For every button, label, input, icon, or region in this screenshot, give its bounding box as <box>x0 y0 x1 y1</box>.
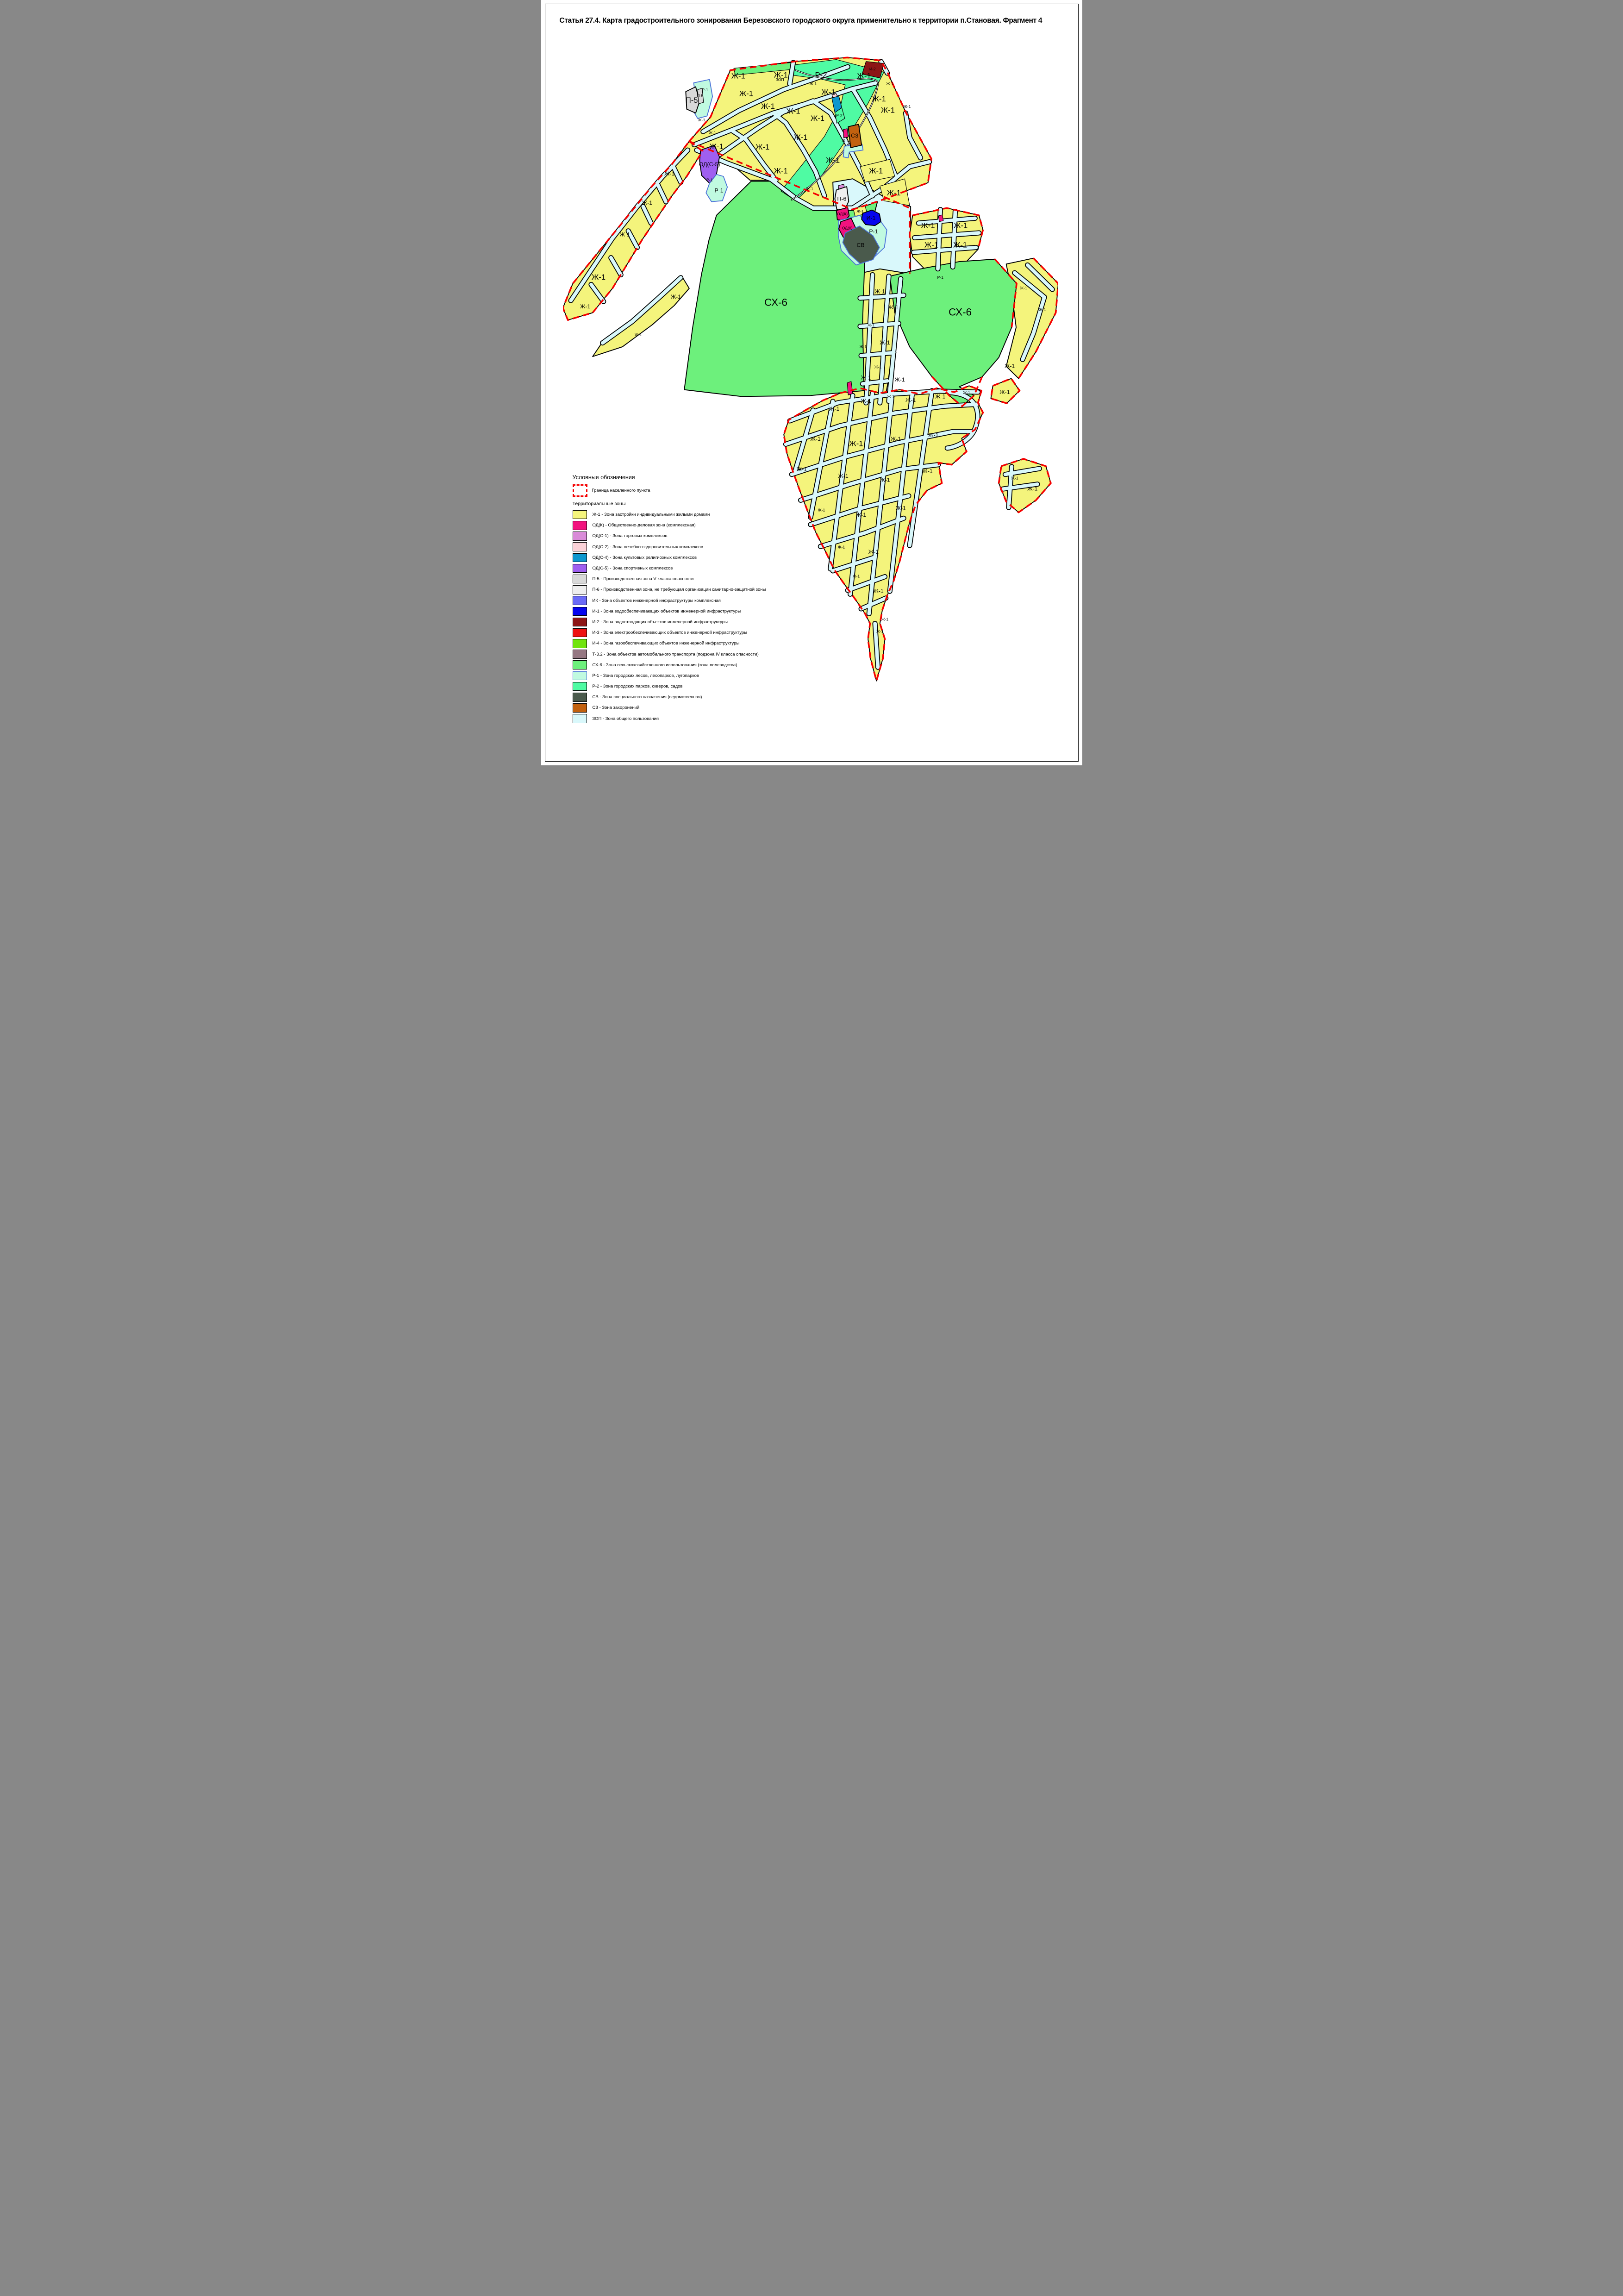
legend-item-ods1: ОД(С-1) - Зона торговых комплексов <box>573 531 813 541</box>
map-zone-label: Ж-1 <box>886 81 893 86</box>
map-zone-label: Ж-1 <box>867 323 874 327</box>
legend-swatch-zh1 <box>573 510 587 519</box>
legend-label: СЗ - Зона захоронений <box>593 705 640 710</box>
legend-swatch-ods2 <box>573 542 587 551</box>
legend-label: И-2 - Зона водоотводящих объектов инжене… <box>593 619 728 625</box>
map-zone-label: Ж-1 <box>861 398 871 404</box>
map-zone-label: Ж-1 <box>874 365 881 369</box>
map-zone-label: Ж-1 <box>664 170 674 177</box>
map-zone-label: Ж-1 <box>810 114 824 123</box>
map-zone-label: Ж-1 <box>861 375 871 381</box>
legend-items: Ж-1 - Зона застройки индивидуальными жил… <box>573 509 813 724</box>
map-zone-label: Ж-1 <box>1020 286 1027 290</box>
legend-item-zop: ЗОП - Зона общего пользования <box>573 713 813 724</box>
legend-label: П-6 - Производственная зона, не требующа… <box>593 587 766 592</box>
map-zone-label: Ж-1 <box>1011 475 1018 480</box>
map-zone-label: Ж-1 <box>953 241 967 250</box>
map-zone-label: Ж-1 <box>1027 485 1038 492</box>
map-zone-label: Ж-1 <box>670 294 681 300</box>
map-zone-label: Ж-1 <box>731 72 745 81</box>
map-zone-label: Ж-1 <box>837 545 845 550</box>
map-zone-label: Ж-1 <box>928 432 939 438</box>
legend-label: СВ - Зона специального назначения (ведом… <box>593 694 702 700</box>
map-zone-label: Ж-1 <box>829 406 840 412</box>
legend-label: ОД(С-1) - Зона торговых комплексов <box>593 533 668 538</box>
legend-swatch-t32 <box>573 650 587 659</box>
page-title: Статья 27.4. Карта градостроительного зо… <box>560 17 1042 25</box>
legend-item-i3: И-3 - Зона электрообеспечивающих объекто… <box>573 627 813 638</box>
legend-swatch-sv <box>573 693 587 702</box>
legend-swatch-i4 <box>573 639 587 648</box>
map-zone-label: Ж-1 <box>1004 363 1015 369</box>
legend: Условные обозначения Граница населенного… <box>573 474 813 724</box>
map-zone-label: Ж-1 <box>739 90 753 98</box>
map-zone-label: Ж-1 <box>838 473 849 479</box>
map-zone-label: Ж-1 <box>852 574 860 579</box>
map-zone-label: Ж-1 <box>890 436 901 442</box>
legend-swatch-ods1 <box>573 532 587 541</box>
map-zone-label: Ж-1 <box>880 477 890 483</box>
legend-item-r1: Р-1 - Зона городских лесов, лесопарков, … <box>573 670 813 681</box>
map-zone-label: П-5 <box>685 96 698 105</box>
map-zone-label: Ж-1 <box>849 440 863 448</box>
legend-label: ОД(С-5) - Зона спортивных комплексов <box>593 566 673 571</box>
map-zone-label: Ж-1 <box>818 508 825 513</box>
map-zone-label: Ж-1 <box>963 390 970 395</box>
map-zone-label: Ж-1 <box>857 72 871 81</box>
map-zone-label: Ж-1 <box>809 81 817 86</box>
legend-item-i2: И-2 - Зона водоотводящих объектов инжене… <box>573 617 813 627</box>
legend-swatch-sh6 <box>573 660 587 669</box>
map-zone-label: Ж-1 <box>786 107 800 115</box>
legend-boundary-row: Граница населенного пункта <box>573 483 813 497</box>
map-zone-label: Ж-1 <box>999 389 1010 395</box>
map-zone-label: Ж-1 <box>642 200 652 206</box>
legend-item-sh6: СХ-6 - Зона сельскохозяйственного исполь… <box>573 660 813 670</box>
map-zone-label: Ж-1 <box>880 106 894 114</box>
map-zone-label: Ж-1 <box>888 304 899 311</box>
legend-label: И-4 - Зона газообеспечивающих объектов и… <box>593 641 740 646</box>
legend-label: Р-2 - Зона городских парков, скверов, са… <box>593 684 683 689</box>
map-zone-label: Ж-1 <box>905 397 916 403</box>
legend-item-t32: Т-3.2 - Зона объектов автомобильного тра… <box>573 649 813 659</box>
legend-swatch-r2 <box>573 682 587 691</box>
legend-swatch-ik <box>573 596 587 605</box>
map-zone-label: ОД(С-5) <box>699 161 720 168</box>
map-zone-label: Ж-1 <box>709 143 723 151</box>
map-zone-label: Ж-1 <box>826 156 840 165</box>
legend-item-ik: ИК - Зона объектов инженерной инфраструк… <box>573 595 813 606</box>
map-zone-label: Ж-1 <box>856 209 864 213</box>
legend-item-r2: Р-2 - Зона городских парков, скверов, са… <box>573 681 813 692</box>
legend-item-p6: П-6 - Производственная зона, не требующа… <box>573 584 813 595</box>
legend-swatch-i1 <box>573 607 587 616</box>
legend-title: Условные обозначения <box>573 474 813 481</box>
map-zone-label: Ж-1 <box>709 131 716 135</box>
legend-swatch-sz <box>573 703 587 713</box>
legend-swatch-r1 <box>573 671 587 681</box>
map-zone-label: И-1 <box>866 215 875 221</box>
map-zone-label: Ж-1 <box>698 118 705 122</box>
map-zone-label: Ж-1 <box>755 143 769 151</box>
map-zone-label: Ж-1 <box>887 394 894 399</box>
legend-item-ods4: ОД(С-4) - Зона культовых религиозных ком… <box>573 552 813 563</box>
legend-label: Т-3.2 - Зона объектов автомобильного тра… <box>593 652 759 657</box>
map-zone-label: Ж-1 <box>580 303 591 310</box>
map-zone-label: Ж-1 <box>954 222 968 230</box>
map-zone-label: Р-1 <box>937 275 943 280</box>
map-zone-label: Ж-1 <box>855 512 866 518</box>
map-zone-label: Ж-1 <box>869 167 883 175</box>
legend-label: ЗОП - Зона общего пользования <box>593 716 659 721</box>
map-zone-label: Ж-1 <box>821 88 835 96</box>
map-zone-label: Р-2 <box>836 113 843 118</box>
map-zone-label: ОД(К) <box>842 226 852 231</box>
legend-item-odk: ОД(К) - Общественно-деловая зона (компле… <box>573 520 813 531</box>
map-zone-label: СХ-6 <box>949 306 972 318</box>
legend-item-i4: И-4 - Зона газообеспечивающих объектов и… <box>573 638 813 649</box>
legend-label: СХ-6 - Зона сельскохозяйственного исполь… <box>593 663 737 668</box>
map-zone-label: И-2 <box>869 67 875 71</box>
map-zone-label: Ж-1 <box>873 588 884 594</box>
legend-boundary-label: Граница населенного пункта <box>592 488 650 493</box>
legend-label: П-5 - Производственная зона V класса опа… <box>593 576 694 582</box>
map-zone-label: Ж-1 <box>886 189 900 197</box>
legend-item-sv: СВ - Зона специального назначения (ведом… <box>573 692 813 702</box>
map-zone-label: Ж-1 <box>921 222 935 230</box>
map-zone-label: Ж-1 <box>868 549 879 555</box>
map-zone-label: ЗОП <box>775 77 784 82</box>
legend-swatch-zop <box>573 714 587 723</box>
map-zone-label: Ж-1 <box>619 231 630 238</box>
boundary-symbol <box>573 484 587 497</box>
legend-item-zh1: Ж-1 - Зона застройки индивидуальными жил… <box>573 509 813 520</box>
legend-item-ods5: ОД(С-5) - Зона спортивных комплексов <box>573 563 813 574</box>
map-zone-label: Ж-1 <box>894 376 905 383</box>
map-zone-label: Ж-1 <box>592 273 606 282</box>
zone-odk-small <box>843 129 848 138</box>
map-zone-label: Ж-1 <box>774 167 787 175</box>
legend-swatch-odk <box>573 521 587 530</box>
map-zone-label: СВ <box>856 242 864 249</box>
legend-swatch-ods4 <box>573 553 587 563</box>
map-zone-label: СЗ <box>851 132 858 139</box>
map-zone-label: Ж-1 <box>793 133 807 142</box>
legend-zones-title: Территориальные зоны <box>573 501 813 507</box>
map-zone-label: Ж-1 <box>922 468 933 475</box>
map-zone-label: Ж-1 <box>810 436 821 442</box>
legend-label: И-1 - Зона водообеспечивающих объектов и… <box>593 609 741 614</box>
legend-label: ИК - Зона объектов инженерной инфраструк… <box>593 598 721 603</box>
map-zone-label: Ж-1 <box>935 394 946 400</box>
legend-item-ods2: ОД(С-2) - Зона лечебно-оздоровительных к… <box>573 542 813 552</box>
legend-swatch-i3 <box>573 628 587 638</box>
page: Статья 27.4. Карта градостроительного зо… <box>541 0 1082 765</box>
legend-label: ОД(С-4) - Зона культовых религиозных ком… <box>593 555 697 560</box>
legend-item-p5: П-5 - Производственная зона V класса опа… <box>573 574 813 584</box>
map-zone-label: Ж-1 <box>876 629 884 634</box>
map-zone-label: П-5 <box>697 94 703 98</box>
legend-label: ОД(С-2) - Зона лечебно-оздоровительных к… <box>593 544 703 550</box>
map-zone-label: Ж-1 <box>895 505 906 512</box>
map-zone-label: Ж-1 <box>859 344 867 349</box>
map-zone-label: Р-1 <box>706 178 713 182</box>
map-zone-label: СХ-6 <box>764 296 787 308</box>
map-zone-label: Р-1 <box>869 228 878 235</box>
zone-odk-east <box>938 215 943 222</box>
legend-label: И-3 - Зона электрообеспечивающих объекто… <box>593 630 747 635</box>
map-zone-label: Ж-1 <box>874 288 885 295</box>
legend-item-sz: СЗ - Зона захоронений <box>573 702 813 713</box>
legend-swatch-p5 <box>573 575 587 584</box>
map-zone-label: Ж-1 <box>903 104 911 109</box>
legend-swatch-ods5 <box>573 564 587 573</box>
map-zone-label: Ж-1 <box>761 102 774 111</box>
legend-swatch-p6 <box>573 585 587 594</box>
map-zone-label: Ж-1 <box>1039 307 1046 312</box>
map-zone-label: Ж-1 <box>806 187 813 191</box>
map-zone-label: Ж-1 <box>924 241 938 250</box>
map-zone-label: Ж-1 <box>634 332 642 337</box>
map-zone-label: Ж-1 <box>881 617 888 621</box>
map-zone-label: Р-1 <box>714 188 723 194</box>
map-zone-label: Ж-1 <box>880 339 890 346</box>
map-zone-label: П-6 <box>837 196 846 202</box>
map-zone-label: Р-1 <box>702 88 708 92</box>
legend-label: ОД(К) - Общественно-деловая зона (компле… <box>593 523 696 528</box>
legend-label: Ж-1 - Зона застройки индивидуальными жил… <box>593 512 710 517</box>
map-zone-label: Р-2 <box>815 71 827 80</box>
map-zone-label: Ж-1 <box>872 95 886 103</box>
legend-label: Р-1 - Зона городских лесов, лесопарков, … <box>593 673 699 678</box>
legend-swatch-i2 <box>573 618 587 627</box>
legend-item-i1: И-1 - Зона водообеспечивающих объектов и… <box>573 606 813 617</box>
map-zone-label: Ж-1 <box>796 466 807 472</box>
map-zone-label: ОД(К) <box>837 212 848 216</box>
map-zone-label: Ж-1 <box>842 138 849 143</box>
